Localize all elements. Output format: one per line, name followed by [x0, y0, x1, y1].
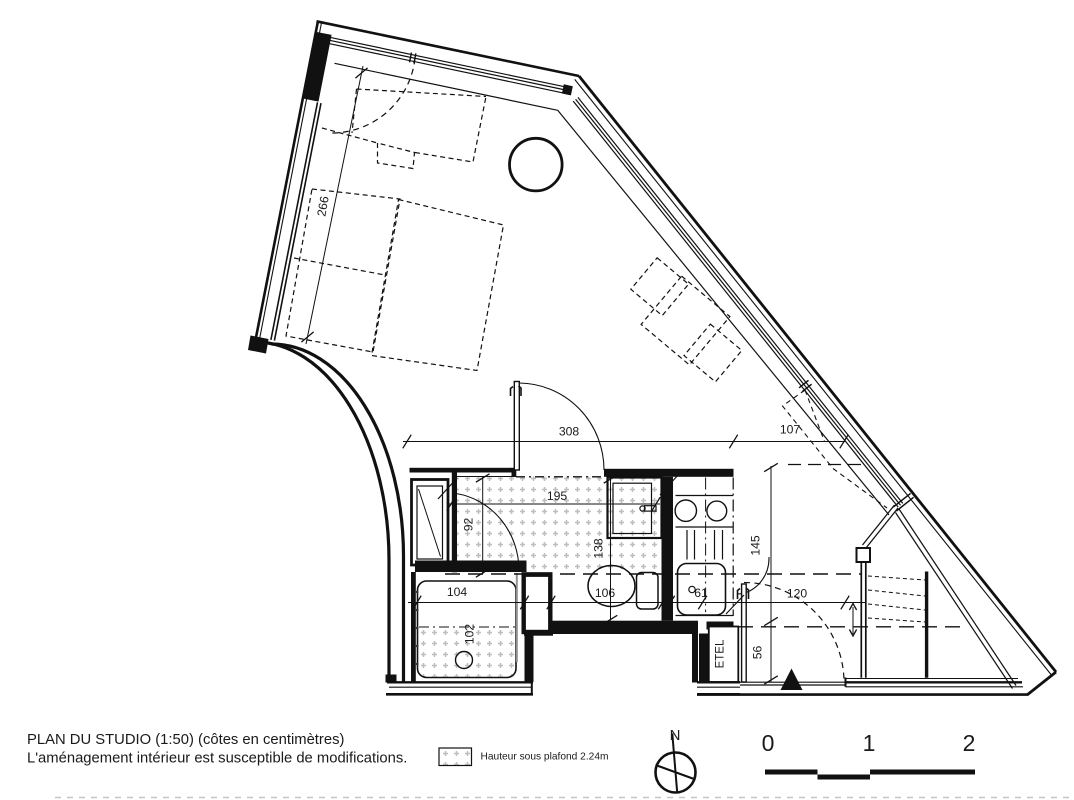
svg-text:L'aménagement intérieur est su: L'aménagement intérieur est susceptible …: [27, 751, 407, 767]
svg-text:N: N: [670, 727, 681, 744]
svg-text:1: 1: [863, 730, 876, 756]
svg-text:106: 106: [595, 586, 616, 600]
svg-text:104: 104: [447, 585, 468, 599]
svg-text:308: 308: [559, 425, 580, 439]
svg-text:145: 145: [749, 535, 763, 556]
svg-text:0: 0: [762, 730, 775, 756]
svg-text:102: 102: [463, 624, 477, 645]
svg-text:Hauteur sous plafond 2.24m: Hauteur sous plafond 2.24m: [481, 752, 609, 763]
svg-text:2: 2: [963, 730, 976, 756]
svg-text:61: 61: [694, 586, 708, 600]
svg-text:195: 195: [547, 489, 568, 503]
svg-text:138: 138: [592, 538, 606, 559]
svg-text:ETEL: ETEL: [715, 639, 727, 668]
svg-text:120: 120: [787, 587, 808, 601]
svg-text:PLAN DU STUDIO (1:50) (côtes e: PLAN DU STUDIO (1:50) (côtes en centimèt…: [27, 732, 344, 748]
svg-text:92: 92: [462, 518, 476, 532]
svg-text:56: 56: [751, 646, 765, 660]
svg-text:107: 107: [780, 423, 801, 437]
svg-text:266: 266: [314, 195, 331, 218]
